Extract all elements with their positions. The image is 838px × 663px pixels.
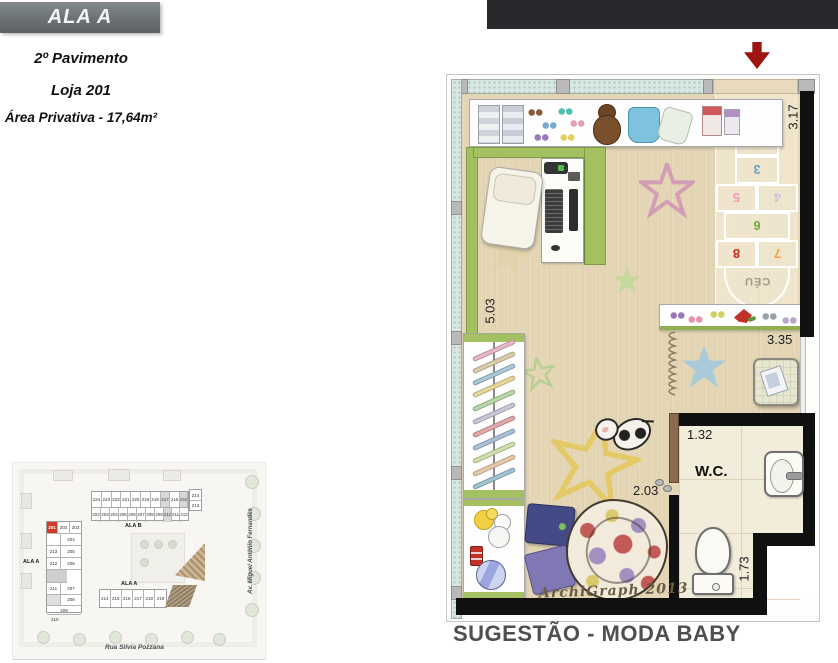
baby-shoes-icon [670,312,685,319]
baby-shoes-icon [688,316,703,323]
hopscotch-cell: 5 [716,184,757,212]
display-shelf-top [469,99,783,147]
wing-ala-a-left: 201 202 203 204 213 205 212 206 211 207 [46,521,82,613]
wc-label: W.C. [695,463,728,480]
rack-end [464,490,524,498]
monitor-icon [569,189,578,231]
wing-ala-b-label: ALA B [125,523,142,529]
dimension-wc-door: 2.03 [633,483,658,498]
chair [480,166,544,251]
exterior-gap [767,546,819,599]
toy-duck-icon [474,510,494,530]
toy-teddy-icon [488,526,510,548]
teddy-bear-icon [590,104,622,144]
entrance-opening [713,79,798,94]
wing-ala-a-bottom: 214 215 216 217 218 219 [99,589,167,608]
star-decal-green-outline [519,354,558,393]
baby-shoes-icon [710,311,725,318]
stair-core [47,570,67,583]
baby-shoes-icon [560,134,575,141]
floor-label: 2º Pavimento [0,50,162,67]
wing-ala-b-annex: 214 213 [189,489,202,511]
star-decal-pink [639,163,695,219]
planter [21,533,32,549]
toy-ball-icon [476,560,506,590]
baby-shoes-icon [558,108,573,115]
wc-door [669,413,679,483]
clothes-rack [463,333,525,499]
wall-column [556,79,570,94]
fabric-swatch-icon [760,365,789,397]
baby-shoes-icon [534,134,549,141]
wc-wall [674,413,803,426]
floor-plan: 1 2 3 5 4 6 8 7 CÉU [446,74,820,622]
planter [21,493,32,509]
baby-bodysuit-icon [656,106,694,147]
baby-bodysuit-icon [628,107,660,143]
star-decal-blue [680,344,728,392]
plaid-ottoman [753,358,799,406]
wing-ala-a-left-label: ALA A [23,559,39,565]
planter [163,470,181,481]
storefront-wall-top [451,79,713,94]
sink [764,451,804,497]
wc-wall [803,413,815,546]
toilet [692,527,734,597]
tree-icon [109,631,122,644]
side-wall-left [451,79,462,619]
dimension-wc-width: 1.32 [687,427,712,442]
baby-shoes-icon [570,120,585,127]
baby-shoes-icon [782,317,797,324]
planter [108,469,130,481]
hopscotch-sky: CÉU [724,266,790,308]
baby-shoes-icon [762,313,777,320]
card-machine-icon [544,162,568,174]
toy-shelf [463,499,525,599]
baby-shoes-icon [528,109,543,116]
dimension-wc-depth: 1.73 [737,556,752,581]
mouse-icon [551,245,560,251]
tree-icon [245,603,259,617]
entrance-arrow-icon [744,42,770,69]
door-handle-icon [663,485,672,492]
hopscotch-cell: 3 [735,156,779,184]
tree-icon [37,631,50,644]
squiggle-decal [663,330,679,396]
tree-icon [245,475,259,489]
hopscotch-cell: 7 [757,240,798,268]
wall-bottom [456,598,767,615]
wall-column [451,331,462,345]
hopscotch-cell: 6 [724,212,790,240]
hopscotch-cell: 4 [757,184,798,212]
baby-shoes-icon [542,122,557,129]
highlighted-unit: 201 [47,522,58,533]
private-area-label: Área Privativa - 17,64m² [0,110,162,125]
wing-ala-a-bottom-label: ALA A [121,581,137,587]
planter [53,470,73,481]
planter [21,573,32,589]
dimension-top-right: 3.17 [786,104,801,129]
dimension-left-wall: 5.03 [483,298,498,323]
wall-column [451,466,462,480]
tree-icon [213,633,226,646]
keyboard-icon [545,189,563,233]
towel-stack-icon [502,105,524,144]
wall-column [451,201,462,215]
wc-wall [753,533,815,546]
site-plan: 224 223 222 221 220 219 218 217 216 215 … [12,462,266,660]
side-wall-right [800,91,814,337]
product-box-icon [724,109,740,135]
tree-icon [181,631,194,644]
wing-title: ALA A [0,2,160,33]
plan-caption: SUGESTÃO - MODA BABY [453,621,741,647]
dimension-shelf-wall: 3.35 [767,332,792,347]
unit-label: Loja 201 [0,82,162,99]
desk-counter-side [584,147,606,265]
wall-column [703,79,713,94]
printer-icon [568,172,580,181]
hopscotch-cell: 8 [716,240,757,268]
glass-wall-right [800,337,806,413]
tree-icon [73,633,86,646]
toilet-bowl [695,527,731,575]
toilet-tank [692,573,734,595]
street-label-right: Av. Miguel Antônio Fernandes [248,508,254,594]
wc-wall [753,546,767,600]
shelf-edge [464,500,524,506]
towel-stack-icon [478,105,500,144]
top-dark-bar [487,0,838,29]
wing-ala-b: 224 223 222 221 220 219 218 217 216 215 … [91,491,189,521]
partition-wall-green [466,147,478,335]
product-box-icon [702,106,722,136]
brochure-page: ALA A 2º Pavimento Loja 201 Área Privati… [0,0,838,663]
display-shelf-middle [659,304,803,330]
star-decal-green-small [612,266,642,296]
street-label-bottom: Rua Silvia Pozzana [105,644,164,651]
leaf-icon [748,316,757,322]
